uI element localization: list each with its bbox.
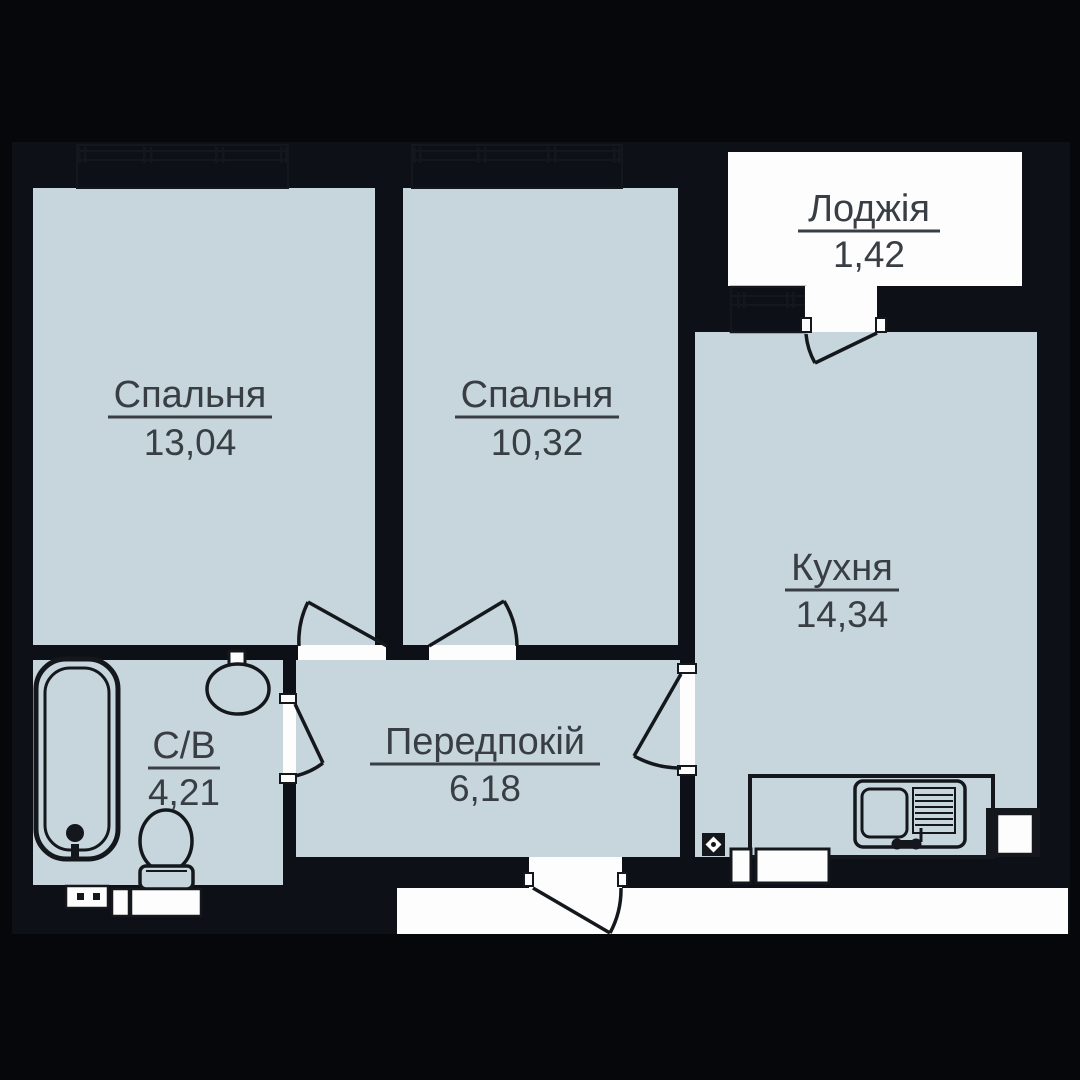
label-kitchen: Кухня 14,34 <box>785 547 899 635</box>
door-opening-bedroom-2 <box>429 645 516 660</box>
room-name: Кухня <box>791 547 893 589</box>
door-opening-loggia <box>805 286 877 332</box>
toilet <box>140 810 193 889</box>
door-opening-kitchen <box>680 673 695 768</box>
room-name: С/В <box>152 725 215 767</box>
door-opening-bedroom-1 <box>298 645 386 660</box>
outside-strip <box>397 888 1068 934</box>
floor-plan-canvas: Спальня 13,04 Спальня 10,32 Лоджія 1,42 … <box>0 0 1080 1080</box>
room-name: Спальня <box>114 374 267 416</box>
kitchen-sink <box>855 781 965 850</box>
room-area: 14,34 <box>796 594 889 635</box>
vent-shaft-kitchen <box>986 808 1040 857</box>
room-area: 1,42 <box>833 234 905 275</box>
room-name: Лоджія <box>808 188 930 230</box>
floor-plan: Спальня 13,04 Спальня 10,32 Лоджія 1,42 … <box>0 0 1080 1080</box>
room-area: 4,21 <box>148 772 220 813</box>
drain-symbol <box>702 833 725 856</box>
bathtub <box>36 659 118 860</box>
radiator-shafts-kitchen <box>731 849 829 883</box>
room-area: 6,18 <box>449 768 521 809</box>
label-bathroom: С/В 4,21 <box>148 725 220 813</box>
room-area: 10,32 <box>491 422 584 463</box>
door-opening-entrance <box>529 857 622 890</box>
room-area: 13,04 <box>144 422 237 463</box>
room-name: Передпокій <box>385 721 585 763</box>
door-opening-bathroom <box>283 703 296 775</box>
room-name: Спальня <box>461 374 614 416</box>
